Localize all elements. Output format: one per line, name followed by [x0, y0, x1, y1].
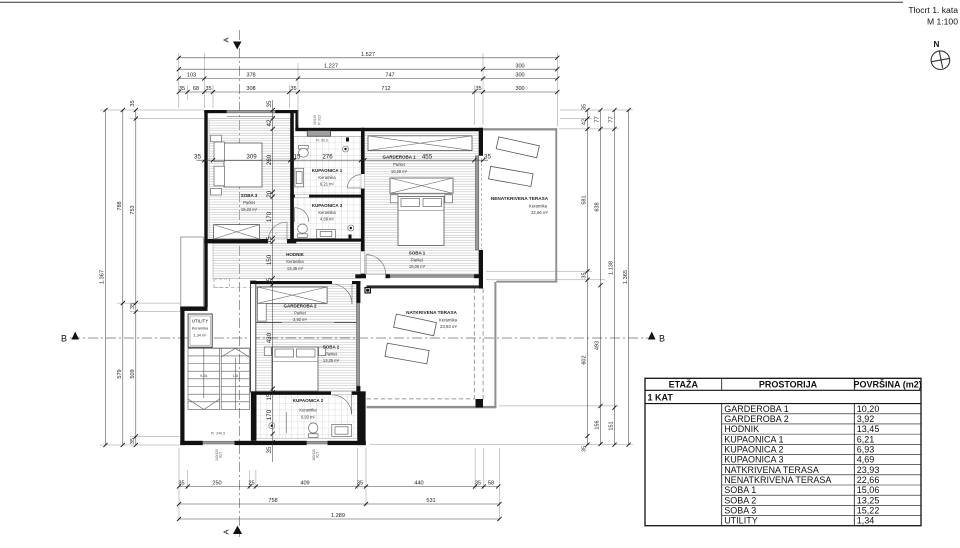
svg-text:35: 35 [475, 481, 481, 487]
svg-text:581: 581 [582, 195, 588, 204]
svg-text:1.367: 1.367 [100, 270, 106, 284]
svg-text:13,25: 13,25 [857, 495, 880, 505]
svg-text:KUPAONICA 3: KUPAONICA 3 [724, 455, 783, 465]
svg-text:KUPAONICA 2: KUPAONICA 2 [724, 444, 783, 454]
svg-text:170: 170 [266, 409, 273, 420]
svg-text:15,06 m²: 15,06 m² [409, 264, 426, 269]
svg-text:3,92 m²: 3,92 m² [293, 317, 308, 322]
svg-text:455: 455 [422, 153, 433, 160]
svg-text:GARDEROBA 1: GARDEROBA 1 [382, 155, 416, 160]
svg-text:276: 276 [322, 153, 333, 160]
svg-text:B: B [659, 334, 665, 344]
svg-text:POVRŠINA (m2): POVRŠINA (m2) [854, 378, 922, 389]
svg-text:HODNIK: HODNIK [724, 424, 759, 434]
svg-text:95/245: 95/245 [313, 115, 317, 125]
svg-text:300: 300 [515, 63, 524, 69]
svg-text:Pr 90,5: Pr 90,5 [318, 115, 322, 126]
svg-text:309: 309 [246, 153, 257, 160]
svg-text:GARDEROBA 1: GARDEROBA 1 [724, 404, 789, 414]
svg-text:6,93 m²: 6,93 m² [301, 415, 316, 420]
svg-text:KUPAONICA 1: KUPAONICA 1 [724, 434, 783, 444]
svg-text:Tlocrt 1. kata: Tlocrt 1. kata [908, 5, 958, 15]
svg-text:77: 77 [595, 116, 601, 122]
svg-text:NATKRIVENA TERASA: NATKRIVENA TERASA [724, 465, 819, 475]
svg-text:170: 170 [266, 211, 273, 222]
svg-text:15: 15 [266, 393, 273, 400]
svg-text:Parket: Parket [294, 311, 307, 316]
svg-text:10,20: 10,20 [857, 404, 880, 414]
svg-text:1.527: 1.527 [361, 52, 375, 58]
svg-text:260: 260 [266, 154, 273, 165]
svg-text:SOBA 3: SOBA 3 [724, 506, 756, 516]
svg-text:9-16: 9-16 [200, 374, 207, 378]
svg-text:602: 602 [582, 355, 588, 364]
svg-text:KUPAONICA 1: KUPAONICA 1 [312, 168, 343, 173]
svg-text:25: 25 [248, 481, 254, 487]
svg-text:638: 638 [595, 202, 601, 211]
svg-text:15,22 m²: 15,22 m² [241, 207, 258, 212]
svg-text:Parket: Parket [325, 352, 338, 357]
svg-text:22,66: 22,66 [857, 475, 880, 485]
svg-text:35: 35 [130, 303, 136, 309]
svg-text:6,21 m²: 6,21 m² [320, 182, 335, 187]
svg-text:90,5: 90,5 [219, 452, 223, 458]
svg-text:1.138: 1.138 [609, 261, 615, 275]
svg-text:68: 68 [193, 86, 199, 92]
svg-text:23,93: 23,93 [857, 465, 880, 475]
svg-text:15: 15 [294, 153, 301, 160]
svg-text:15: 15 [266, 236, 273, 243]
svg-text:NENATKRIVENA TERASA: NENATKRIVENA TERASA [491, 196, 549, 201]
svg-text:758: 758 [268, 498, 277, 504]
svg-text:35: 35 [582, 104, 588, 110]
svg-text:4,69: 4,69 [857, 455, 875, 465]
svg-text:788: 788 [117, 201, 123, 210]
svg-text:SOBA 2: SOBA 2 [724, 495, 756, 505]
svg-text:25: 25 [266, 277, 273, 284]
svg-text:13,45: 13,45 [857, 424, 880, 434]
svg-text:250: 250 [212, 481, 221, 487]
svg-text:Pr. 60,5: Pr. 60,5 [316, 139, 328, 143]
svg-text:42: 42 [582, 119, 588, 125]
svg-text:378: 378 [246, 73, 255, 79]
svg-text:35: 35 [484, 153, 491, 160]
svg-text:15,22: 15,22 [857, 506, 880, 516]
svg-text:15,06: 15,06 [857, 485, 880, 495]
svg-text:A: A [222, 37, 231, 42]
svg-text:13,45 m²: 13,45 m² [287, 266, 304, 271]
svg-text:B: B [61, 334, 67, 344]
svg-text:Keramika: Keramika [318, 175, 336, 180]
svg-text:ETAŽA: ETAŽA [669, 378, 699, 389]
svg-text:1,34 m²: 1,34 m² [193, 333, 207, 338]
svg-text:35: 35 [290, 86, 296, 92]
svg-text:440: 440 [414, 481, 423, 487]
svg-text:300: 300 [515, 73, 524, 79]
svg-text:430: 430 [266, 332, 273, 343]
svg-text:150: 150 [266, 254, 273, 265]
svg-text:Keramika: Keramika [192, 326, 209, 331]
svg-text:35: 35 [130, 100, 136, 106]
svg-text:35: 35 [266, 100, 273, 107]
svg-text:SOBA 2: SOBA 2 [323, 345, 340, 350]
svg-text:13,25 m²: 13,25 m² [323, 358, 340, 363]
svg-text:35: 35 [475, 86, 481, 92]
svg-text:SOBA 1: SOBA 1 [724, 485, 756, 495]
svg-text:Parket: Parket [393, 162, 406, 167]
svg-text:35: 35 [582, 446, 588, 452]
svg-text:3,92: 3,92 [857, 414, 875, 424]
svg-text:58: 58 [488, 481, 494, 487]
svg-text:712: 712 [381, 86, 390, 92]
svg-text:35: 35 [130, 438, 136, 444]
svg-text:4,69 m²: 4,69 m² [320, 217, 335, 222]
svg-text:A: A [222, 529, 231, 534]
svg-text:Keramika: Keramika [439, 318, 458, 323]
svg-text:35: 35 [194, 153, 201, 160]
svg-text:42: 42 [266, 119, 273, 126]
svg-text:1.289: 1.289 [331, 513, 345, 519]
svg-text:Keramika: Keramika [529, 204, 548, 209]
svg-text:531: 531 [426, 498, 435, 504]
svg-text:UTILITY: UTILITY [724, 516, 758, 526]
svg-text:308: 308 [246, 86, 255, 92]
svg-text:KUPAONICA 2: KUPAONICA 2 [293, 398, 324, 403]
svg-text:N: N [934, 40, 940, 49]
svg-text:156: 156 [595, 420, 601, 429]
svg-text:35: 35 [357, 481, 363, 487]
svg-text:90,5: 90,5 [316, 452, 320, 458]
svg-text:20: 20 [266, 190, 273, 197]
svg-text:M 1:100: M 1:100 [927, 17, 958, 27]
svg-text:Parket: Parket [411, 258, 424, 263]
svg-text:1.227: 1.227 [324, 63, 338, 69]
svg-text:509: 509 [130, 369, 136, 378]
svg-text:6,93: 6,93 [857, 444, 875, 454]
svg-text:PROSTORIJA: PROSTORIJA [759, 379, 818, 389]
svg-text:Parket: Parket [243, 200, 256, 205]
svg-text:493: 493 [595, 341, 601, 350]
svg-text:579: 579 [117, 369, 123, 378]
svg-text:KUPAONICA 3: KUPAONICA 3 [312, 203, 343, 208]
svg-text:35: 35 [178, 481, 184, 487]
svg-text:Keramika: Keramika [318, 210, 336, 215]
svg-text:1.365: 1.365 [623, 270, 629, 284]
svg-text:103: 103 [187, 73, 196, 79]
svg-text:753: 753 [130, 205, 136, 214]
svg-text:UTILITY: UTILITY [192, 319, 208, 324]
svg-text:GARDEROBA 2: GARDEROBA 2 [724, 414, 789, 424]
svg-text:77: 77 [609, 116, 615, 122]
svg-text:HODNIK: HODNIK [286, 252, 304, 257]
svg-text:NATKRIVENA TERASA: NATKRIVENA TERASA [406, 310, 457, 315]
svg-text:35: 35 [179, 86, 185, 92]
svg-text:35: 35 [205, 86, 211, 92]
svg-text:35: 35 [582, 272, 588, 278]
svg-text:GARDEROBA 2: GARDEROBA 2 [283, 304, 317, 309]
svg-text:1 KAT: 1 KAT [648, 392, 674, 402]
svg-text:NENATKRIVENA TERASA: NENATKRIVENA TERASA [724, 475, 831, 485]
svg-text:Pr. 240,5: Pr. 240,5 [211, 432, 225, 436]
svg-text:SOBA 1: SOBA 1 [409, 251, 426, 256]
svg-text:Keramika: Keramika [299, 408, 317, 413]
svg-text:35: 35 [266, 446, 273, 453]
svg-text:747: 747 [385, 73, 394, 79]
svg-text:Keramika: Keramika [286, 259, 304, 264]
svg-text:6,21: 6,21 [857, 434, 875, 444]
svg-text:23,93 m²: 23,93 m² [440, 324, 458, 329]
svg-text:1-8: 1-8 [233, 374, 238, 378]
svg-text:409: 409 [300, 481, 309, 487]
svg-text:SOBA 3: SOBA 3 [241, 193, 258, 198]
svg-text:22,66 m²: 22,66 m² [531, 210, 549, 215]
svg-text:1,34: 1,34 [857, 516, 875, 526]
svg-text:151: 151 [609, 421, 615, 430]
svg-text:10,20 m²: 10,20 m² [391, 169, 408, 174]
svg-text:300: 300 [515, 86, 524, 92]
